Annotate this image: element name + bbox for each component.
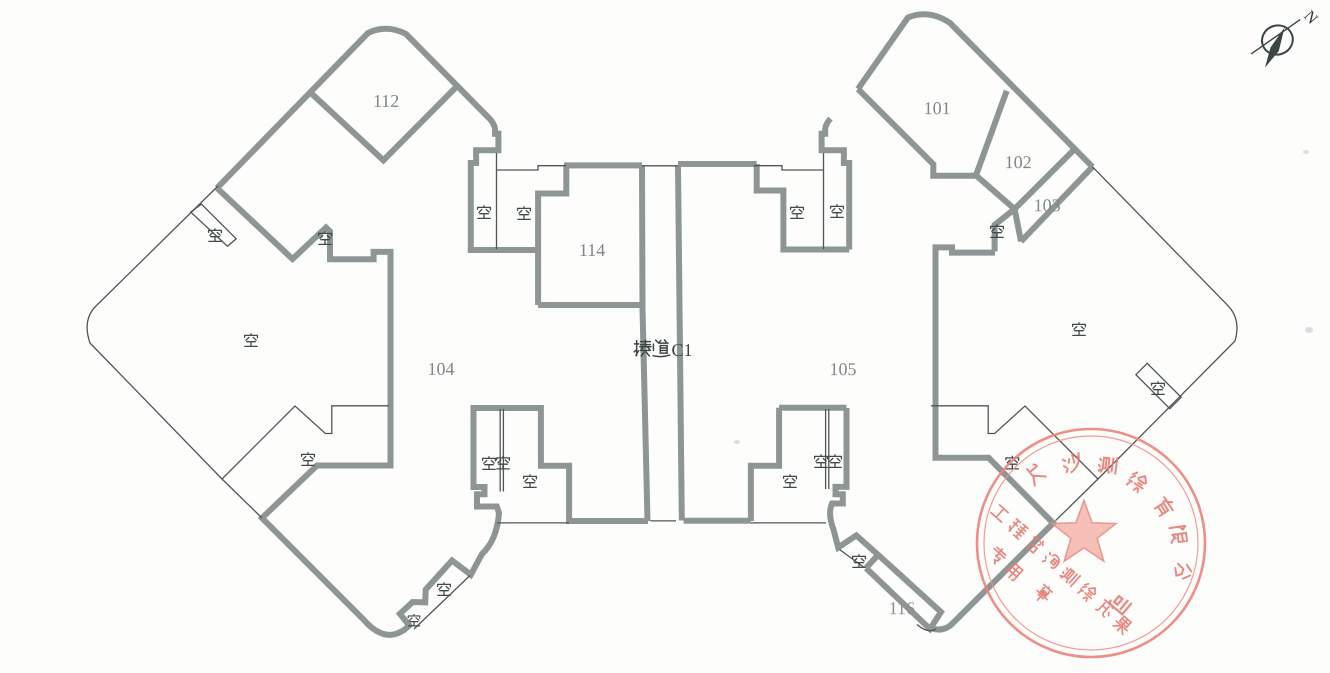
svg-text:116: 116 (889, 598, 915, 618)
svg-text:C1: C1 (671, 340, 692, 360)
svg-text:101: 101 (924, 98, 951, 118)
svg-text:105: 105 (829, 359, 856, 379)
svg-text:N: N (1300, 8, 1321, 28)
svg-text:102: 102 (1005, 152, 1032, 172)
svg-text:112: 112 (373, 91, 399, 111)
svg-text:104: 104 (427, 359, 454, 379)
svg-text:114: 114 (579, 240, 605, 260)
svg-text:103: 103 (1034, 195, 1061, 215)
